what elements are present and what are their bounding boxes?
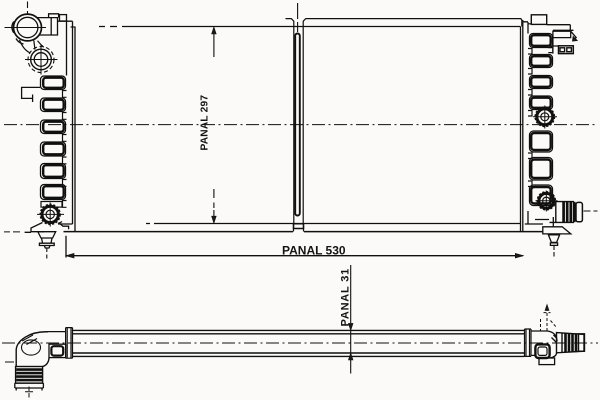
svg-text:PANAL 297: PANAL 297 [199,95,210,151]
svg-text:PANAL 530: PANAL 530 [282,244,346,258]
svg-text:PANAL 31: PANAL 31 [340,268,352,327]
